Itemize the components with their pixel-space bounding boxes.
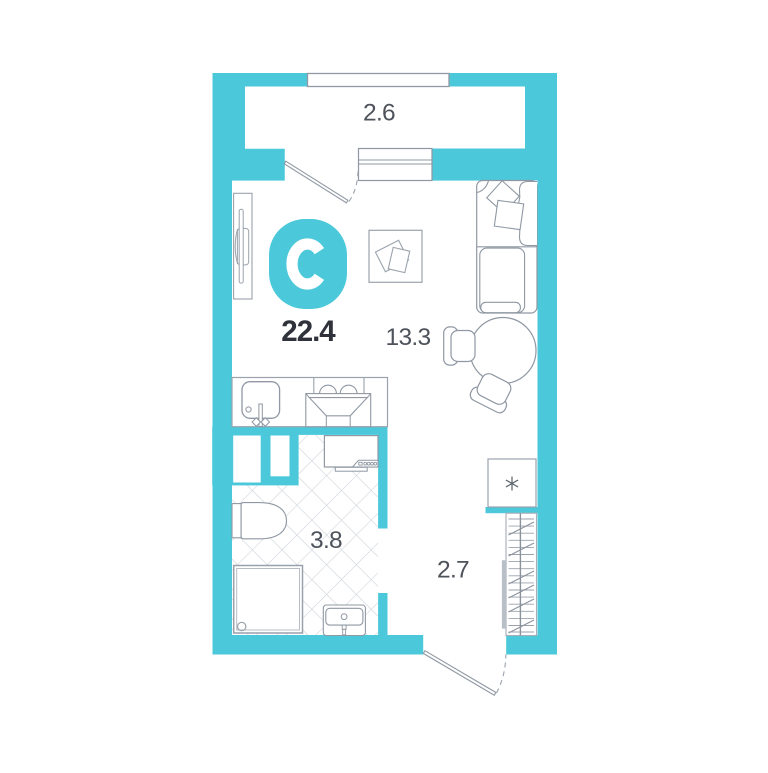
svg-text:22.4: 22.4	[281, 315, 336, 348]
svg-text:13.3: 13.3	[386, 324, 431, 351]
svg-text:2.6: 2.6	[363, 100, 395, 127]
svg-text:2.7: 2.7	[437, 557, 469, 584]
svg-text:3.8: 3.8	[310, 527, 342, 554]
